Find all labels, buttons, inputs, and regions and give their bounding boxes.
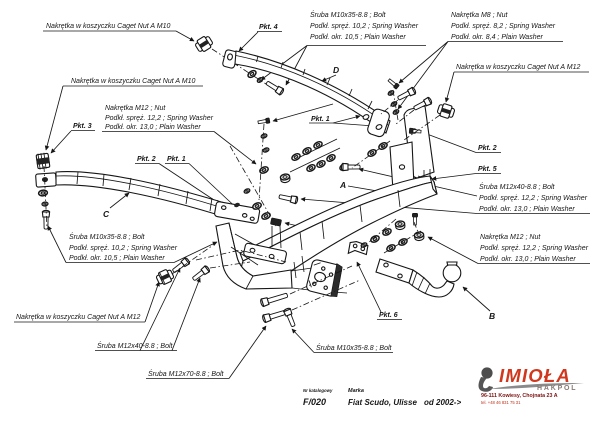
svg-text:Pkt. 2: Pkt. 2 [137, 156, 156, 163]
svg-text:Nakrętka w koszyczku Caget Nut: Nakrętka w koszyczku Caget Nut A M12 [456, 64, 580, 71]
svg-text:Podkł. okr. 13,0 ; Plain Wash: Podkł. okr. 13,0 ; Plain Washer [480, 256, 576, 263]
svg-text:Nakrętka w koszyczku Caget Nut: Nakrętka w koszyczku Caget Nut A M12 [16, 314, 140, 321]
svg-text:B: B [489, 311, 495, 321]
svg-text:Śruba M12x40-8.8 ; Bolt: Śruba M12x40-8.8 ; Bolt [97, 341, 174, 350]
svg-text:IMIOŁA: IMIOŁA [499, 365, 571, 386]
svg-text:Marka: Marka [348, 388, 364, 394]
svg-text:Podkł. spręż. 12,2 ; Spring Wa: Podkł. spręż. 12,2 ; Spring Washer [480, 245, 589, 252]
svg-text:Pkt. 2: Pkt. 2 [478, 145, 497, 152]
svg-text:F/020: F/020 [303, 397, 326, 407]
svg-text:Pkt. 1: Pkt. 1 [311, 116, 330, 123]
svg-text:Podkł. spręż. 10,2 ; Spring Wa: Podkł. spręż. 10,2 ; Spring Washer [69, 245, 178, 252]
svg-text:Pkt. 1: Pkt. 1 [167, 156, 186, 163]
svg-text:D: D [333, 65, 339, 75]
svg-text:Podkł. spręż. 12,2 ; Spring Wa: Podkł. spręż. 12,2 ; Spring Washer [105, 115, 214, 122]
svg-text:A: A [339, 180, 346, 190]
svg-text:Śruba M12x70-8.8 ; Bolt: Śruba M12x70-8.8 ; Bolt [148, 369, 225, 378]
svg-text:Podkł. okr. 10,5 ; Plain Wash: Podkł. okr. 10,5 ; Plain Washer [69, 255, 165, 262]
svg-text:Podkł. spręż. 8,2 ; Spring Wa: Podkł. spręż. 8,2 ; Spring Washer [451, 23, 556, 30]
svg-text:Pkt. 4: Pkt. 4 [259, 24, 278, 31]
svg-text:Podkł. spręż. 10,2 ; Spring W: Podkł. spręż. 10,2 ; Spring Washer [310, 23, 419, 30]
svg-text:Śruba M10x35-8.8 ; Bolt: Śruba M10x35-8.8 ; Bolt [316, 343, 393, 352]
svg-text:Śruba M12x40-8.8 ; Bolt: Śruba M12x40-8.8 ; Bolt [479, 182, 556, 191]
svg-text:od 2002->: od 2002-> [424, 398, 461, 407]
svg-text:HAKPOL: HAKPOL [537, 385, 577, 392]
svg-text:C: C [103, 209, 110, 219]
svg-text:Pkt. 6: Pkt. 6 [379, 312, 398, 319]
svg-text:Nakrętka M12 ; Nut: Nakrętka M12 ; Nut [105, 105, 166, 112]
svg-text:Podkł. okr. 13,0 ; Plain Wash: Podkł. okr. 13,0 ; Plain Washer [479, 206, 575, 213]
svg-text:Podkł. okr. 8,4 ; Plain Washe: Podkł. okr. 8,4 ; Plain Washer [451, 34, 543, 41]
svg-text:Podkł. okr. 13,0 ; Plain Wash: Podkł. okr. 13,0 ; Plain Washer [105, 124, 201, 131]
svg-text:Podkł. spręż. 12,2 ; Spring W: Podkł. spręż. 12,2 ; Spring Washer [479, 195, 588, 202]
svg-text:96-111 Kowiesy, Chojnata 23 A: 96-111 Kowiesy, Chojnata 23 A [481, 393, 558, 399]
svg-text:Nakrętka M12 ; Nut: Nakrętka M12 ; Nut [480, 234, 541, 241]
svg-text:tel. +48 46 831 75 31: tel. +48 46 831 75 31 [481, 400, 521, 405]
svg-text:Nr katalogowy: Nr katalogowy [303, 388, 333, 393]
svg-text:Fiat Scudo, Ulisse: Fiat Scudo, Ulisse [348, 398, 417, 407]
svg-text:Śruba M10x35-8.8 ; Bolt: Śruba M10x35-8.8 ; Bolt [310, 10, 387, 19]
svg-text:Śruba M10x35-8.8 ; Bolt: Śruba M10x35-8.8 ; Bolt [69, 232, 146, 241]
svg-text:Pkt. 5: Pkt. 5 [478, 166, 497, 173]
svg-text:Nakrętka M8 ; Nut: Nakrętka M8 ; Nut [451, 12, 508, 19]
svg-text:Nakrętka w koszyczku Caget Nut: Nakrętka w koszyczku Caget Nut A M10 [71, 78, 195, 85]
svg-text:Pkt. 3: Pkt. 3 [73, 123, 92, 130]
svg-text:Nakrętka w koszyczku Caget Nut: Nakrętka w koszyczku Caget Nut A M10 [46, 23, 170, 30]
svg-text:Podkł. okr. 10,5 ; Plain Wash: Podkł. okr. 10,5 ; Plain Washer [310, 34, 406, 41]
